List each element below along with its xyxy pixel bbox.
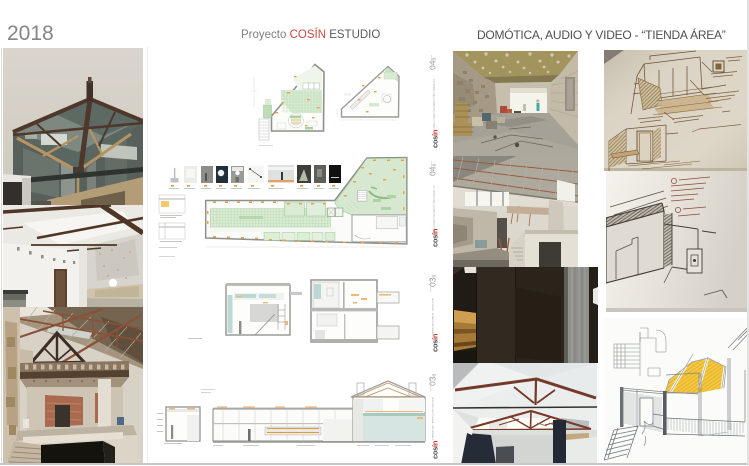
svg-text:P.1 TIENDA AREA | DOMOTICA AU: P.1 TIENDA AREA | DOMOTICA AUDIO Y VIDEO [432,185,435,236]
svg-text:cosín: cosín [431,333,440,352]
svg-text:cosín: cosín [431,440,440,459]
svg-text:SECCION LONGITUDINAL · REFORMA: SECCION LONGITUDINAL · REFORMADO [431,397,434,440]
svg-text:P.2 TIENDA AREA | DOMOTICA AU: P.2 TIENDA AREA | DOMOTICA AUDIO Y VIDEO [432,79,435,130]
svg-text:SECCIONES · ESTADO REFORMADO ·: SECCIONES · ESTADO REFORMADO · i [431,298,434,339]
svg-text:cosín: cosín [431,129,440,148]
svg-text:cosín: cosín [431,228,440,247]
